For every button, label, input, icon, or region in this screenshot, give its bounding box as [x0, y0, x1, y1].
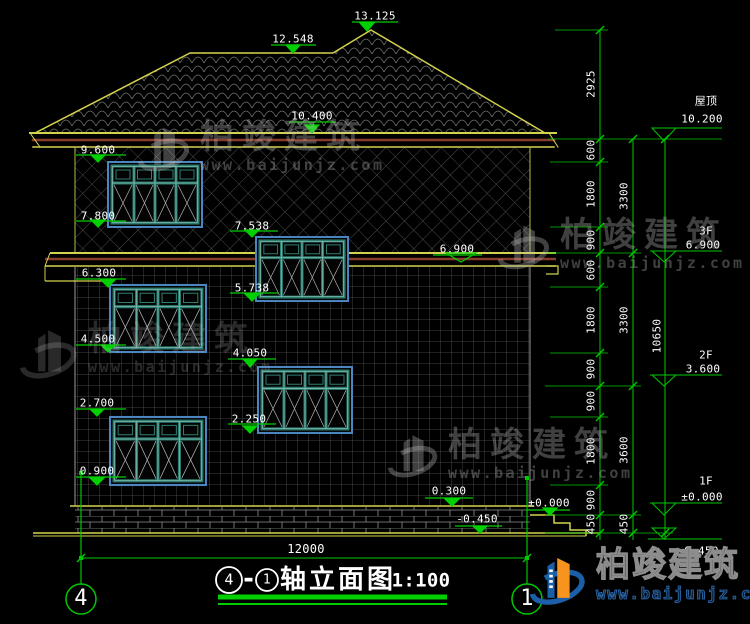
- title-axis-end: 1: [263, 574, 271, 587]
- brand-logo: 柏竣建筑 www.baijunjz.com: [528, 548, 750, 614]
- dim-overall-width: 12000: [287, 543, 325, 555]
- watermark-url: www.baijunjz.com: [448, 464, 633, 482]
- mark-w2f-head: 6.300: [82, 268, 117, 279]
- watermark-right: 柏竣建筑 www.baijunjz.com: [496, 218, 745, 276]
- watermark-bottom: 柏竣建筑 www.baijunjz.com: [386, 428, 633, 484]
- brand-logo-icon: [136, 120, 194, 178]
- dim-floor-3300a: 3300: [619, 182, 630, 210]
- title-axis-start: 4: [224, 573, 233, 588]
- dim-total-10650: 10650: [652, 319, 663, 354]
- mark-ridge-main: 13.125: [354, 11, 396, 22]
- dim-floor-3300b: 3300: [619, 306, 630, 334]
- level-1f-label: 1F: [699, 476, 713, 487]
- dim-inner-1800b: 1800: [586, 306, 597, 334]
- watermark-url: www.baijunjz.com: [560, 254, 745, 272]
- window-stair: [256, 237, 348, 301]
- elevation-drawing: 13.125 12.548 10.400 9.600 7.800 7.538 6…: [0, 0, 750, 624]
- dim-floor-450: 450: [619, 514, 630, 535]
- level-2f-value: 3.600: [686, 364, 721, 375]
- dim-inner-600a: 600: [586, 140, 597, 161]
- dim-inner-2925: 2925: [586, 70, 597, 98]
- level-roof-value: 10.200: [681, 114, 723, 125]
- level-roof-label: 屋顶: [695, 96, 718, 107]
- mark-w1f-sill: 0.900: [80, 466, 115, 477]
- watermark-name: 柏竣建筑: [88, 322, 273, 358]
- dim-inner-900b: 900: [586, 359, 597, 380]
- mark-w3f-head: 9.600: [81, 145, 116, 156]
- window-1f-left: [110, 417, 206, 485]
- mark-stair-sill: 5.738: [235, 283, 270, 294]
- watermark-top: 柏竣建筑 www.baijunjz.com: [136, 120, 385, 178]
- brand-logo-icon: [496, 218, 554, 276]
- drawing-graphics: [0, 0, 750, 624]
- watermark-left: 柏竣建筑 www.baijunjz.com: [18, 322, 273, 386]
- dim-inner-1800a: 1800: [586, 180, 597, 208]
- title-name: 轴立面图: [280, 567, 396, 593]
- brand-name: 柏竣建筑: [596, 548, 750, 584]
- mark-w3f-sill: 7.800: [81, 211, 116, 222]
- watermark-name: 柏竣建筑: [448, 428, 633, 464]
- brand-logo-icon: [528, 548, 590, 614]
- title-separator: -: [243, 566, 257, 592]
- ground-line: [33, 533, 600, 536]
- mark-stair-head: 7.538: [235, 221, 270, 232]
- dim-inner-900c: 900: [586, 391, 597, 412]
- watermark-name: 柏竣建筑: [200, 120, 385, 156]
- watermark-url: www.baijunjz.com: [88, 358, 273, 376]
- mark-plinth: 0.300: [432, 486, 467, 497]
- title-scale: 1:100: [392, 572, 451, 591]
- axis-bubble-left: 4: [74, 588, 88, 610]
- mark-ground-zero: ±0.000: [528, 498, 570, 509]
- mark-w2fr-sill: 2.250: [232, 414, 267, 425]
- brand-logo-icon: [386, 428, 442, 484]
- level-2f-label: 2F: [699, 350, 713, 361]
- mark-ground: -0.450: [456, 514, 498, 525]
- mark-ridge-left: 12.548: [272, 34, 314, 45]
- watermark-name: 柏竣建筑: [560, 218, 745, 254]
- mark-band: 6.900: [440, 244, 475, 255]
- brand-logo-icon: [18, 322, 82, 386]
- brand-url: www.baijunjz.com: [596, 584, 750, 603]
- mark-w1f-head: 2.700: [80, 398, 115, 409]
- level-1f-value: ±0.000: [681, 492, 723, 503]
- watermark-url: www.baijunjz.com: [200, 156, 385, 174]
- dim-inner-450: 450: [586, 514, 597, 535]
- dim-inner-900d: 900: [586, 490, 597, 511]
